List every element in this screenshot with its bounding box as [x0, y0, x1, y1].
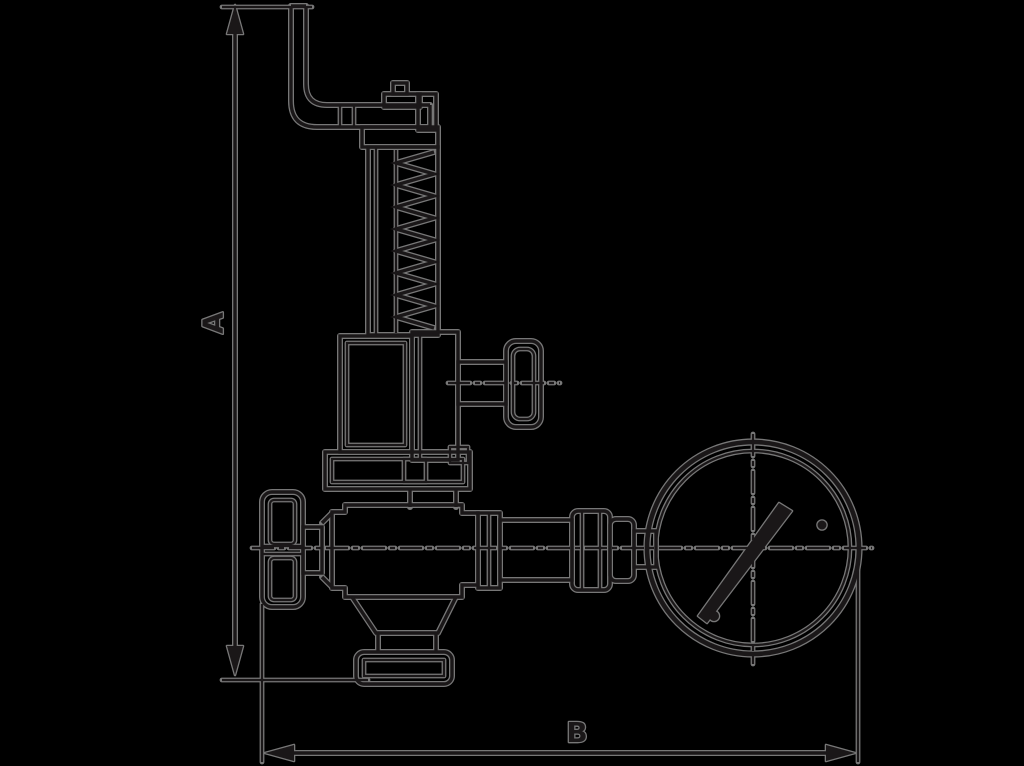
arrowhead-left-icon: [265, 745, 294, 761]
bonnet-inner: [347, 343, 405, 445]
gauge-screw-dot: [709, 611, 719, 621]
union-nut: [572, 511, 610, 590]
pressure-gauge: [252, 434, 872, 664]
arrowhead-down-icon: [227, 646, 243, 675]
bonnet-outer: [340, 336, 412, 452]
body-outline: [332, 505, 478, 597]
dimension-b-group: B: [262, 552, 858, 762]
drawing-canvas: A B: [0, 0, 1024, 766]
dimension-label-b: B: [566, 716, 587, 749]
handwheel-inner-top: [270, 500, 295, 544]
gauge-screw-dot: [818, 521, 827, 530]
valve-gauge-diagram: A B: [0, 0, 1024, 766]
handwheel-inner-bottom: [270, 558, 295, 600]
spring-housing: [362, 127, 438, 335]
arrowhead-right-icon: [826, 745, 855, 761]
gauge-needle: [698, 503, 792, 623]
valve-bonnet: [340, 332, 458, 460]
outlet-flange: [356, 652, 452, 684]
lever-inner-edge: [306, 6, 430, 105]
dimension-label-a: A: [197, 312, 230, 334]
